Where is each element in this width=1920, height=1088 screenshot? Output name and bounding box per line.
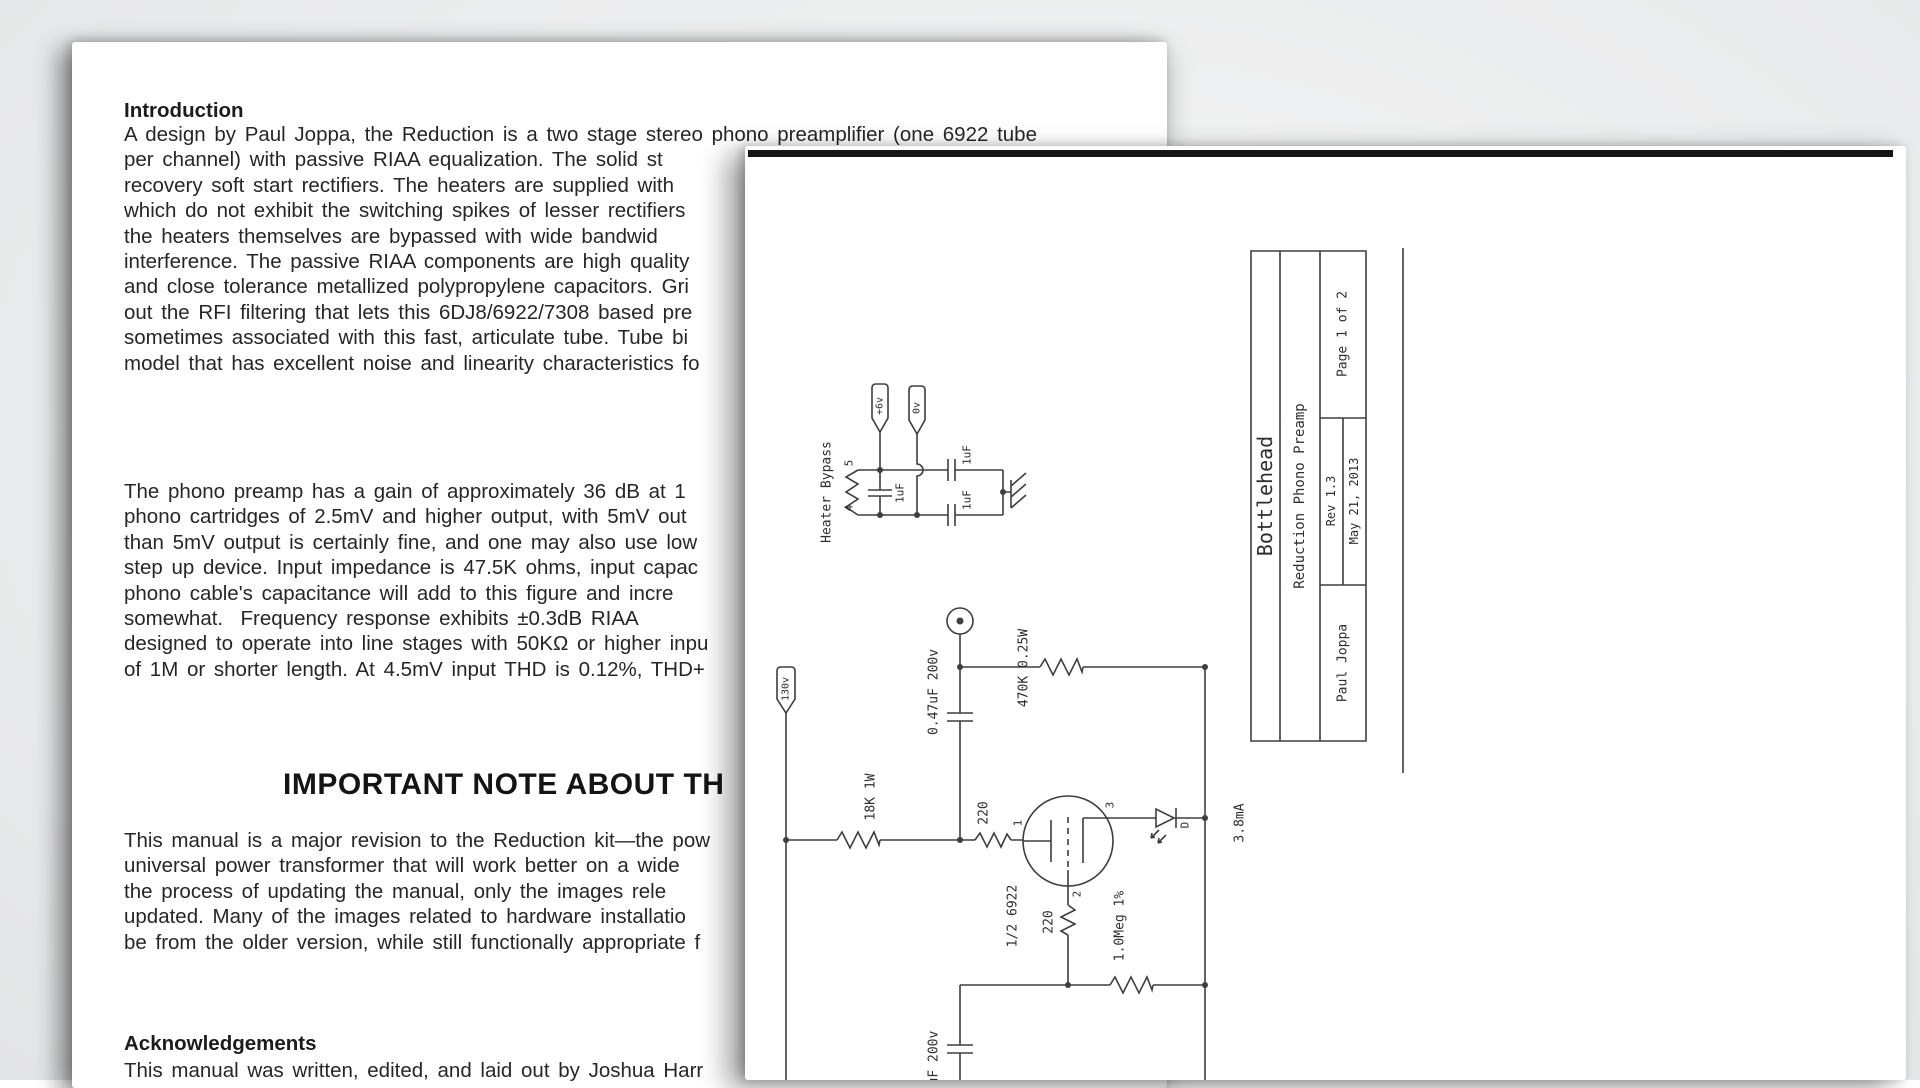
junction-dot xyxy=(1000,489,1006,495)
plus6v-flag-label: +6v xyxy=(875,397,886,415)
revision-paragraph: This manual is a major revision to the R… xyxy=(124,828,710,955)
revision-label: Rev 1.3 xyxy=(1324,476,1338,527)
supply-130v-label: 130v xyxy=(781,677,792,701)
coupling-cap-label: 0.47uF 200v xyxy=(927,649,942,735)
intro-heading: Introduction xyxy=(124,99,244,123)
doc-line: A design by Paul Joppa, the Reduction is… xyxy=(124,122,1037,147)
doc-line: of 1M or shorter length. At 4.5mV input … xyxy=(124,657,708,682)
heater-bypass-label: Heater Bypass xyxy=(820,441,835,543)
gain-stage-circuit: 130v 18K 1W 0.47uF 200v 470K 0.25W 220 xyxy=(777,608,1248,1080)
tube-plate-electrode xyxy=(1023,820,1051,862)
doc-line: universal power transformer that will wo… xyxy=(124,853,710,878)
heater-pin4-label: 4 xyxy=(843,504,856,511)
title-block: Bottlehead Reduction Phono Preamp Page 1… xyxy=(1251,248,1403,773)
heater-bypass-circuit: Heater Bypass +6v 0v 5 4 1uF xyxy=(820,384,1027,543)
tube-cathode-electrode xyxy=(1083,818,1156,863)
doc-line: be from the older version, while still f… xyxy=(124,930,710,955)
tube-pin2-label: 2 xyxy=(1071,891,1084,898)
tube-pin3-label: 3 xyxy=(1104,802,1117,809)
cathode-current-label: 3.8mA xyxy=(1233,803,1248,842)
grid-leak-symbol xyxy=(1110,977,1153,993)
doc-line: The phono preamp has a gain of approxima… xyxy=(124,479,708,504)
grid-leak-label: 1.0Meg 1% xyxy=(1113,891,1128,962)
heater-top-cap xyxy=(948,459,955,481)
heater-shunt-cap xyxy=(868,470,892,515)
doc-line: step up device. Input impedance is 47.5K… xyxy=(124,555,708,580)
riaa-cap-label: 1uF 200v xyxy=(927,1031,942,1080)
cathode-resistor-symbol xyxy=(1061,905,1075,935)
important-note-heading: IMPORTANT NOTE ABOUT TH xyxy=(283,768,724,802)
junction-dot xyxy=(1202,664,1208,670)
riaa-cap-symbol xyxy=(947,985,973,1080)
heater-bottom-cap-label: 1uF xyxy=(961,490,974,510)
doc-line: than 5mV output is certainly fine, and o… xyxy=(124,530,708,555)
doc-line: the process of updating the manual, only… xyxy=(124,879,710,904)
company-name: Bottlehead xyxy=(1253,436,1277,556)
doc-line: updated. Many of the images related to h… xyxy=(124,904,710,929)
plate-resistor-symbol xyxy=(837,832,880,848)
zero-v-flag-label: 0v xyxy=(912,402,923,414)
output-jack-center xyxy=(957,618,964,625)
tube-pin1-label: 1 xyxy=(1012,820,1025,827)
junction-dot xyxy=(783,837,789,843)
doc-line: phono cartridges of 2.5mV and higher out… xyxy=(124,504,708,529)
heater-bottom-cap xyxy=(948,504,955,526)
desktop-background: Introduction A design by Paul Joppa, the… xyxy=(0,0,1920,1080)
sheet-top-border xyxy=(748,150,1893,157)
load-resistor-label: 470K 0.25W xyxy=(1017,629,1032,707)
junction-dot xyxy=(1065,982,1071,988)
plate-stopper-symbol xyxy=(975,833,1011,847)
junction-dot xyxy=(957,664,963,670)
page-number: Page 1 of 2 xyxy=(1336,291,1351,377)
plate-resistor-label: 18K 1W xyxy=(864,773,879,820)
junction-dot xyxy=(914,512,920,518)
schematic-title: Reduction Phono Preamp xyxy=(1292,403,1308,588)
junction-dot xyxy=(957,837,963,843)
acknowledgements-heading: Acknowledgements xyxy=(124,1032,317,1056)
chassis-ground-symbol xyxy=(1003,470,1026,515)
doc-line: phono cable's capacitance will add to th… xyxy=(124,581,708,606)
load-resistor-symbol xyxy=(1040,659,1083,675)
led-designator-label: D xyxy=(1179,822,1192,829)
author-name: Paul Joppa xyxy=(1336,624,1351,702)
heater-top-cap-label: 1uF xyxy=(961,445,974,465)
schematic-drawing: Heater Bypass +6v 0v 5 4 1uF xyxy=(745,146,1906,1080)
doc-line: somewhat. Frequency response exhibits ±0… xyxy=(124,606,708,631)
heater-shunt-cap-label: 1uF xyxy=(894,483,907,503)
wire-with-hop xyxy=(917,434,923,515)
junction-dot xyxy=(877,467,883,473)
schematic-page: Heater Bypass +6v 0v 5 4 1uF xyxy=(745,146,1906,1080)
gain-paragraph: The phono preamp has a gain of approxima… xyxy=(124,479,708,682)
revision-date: May 21, 2013 xyxy=(1347,458,1361,545)
doc-line: designed to operate into line stages wit… xyxy=(124,631,708,656)
junction-dot xyxy=(1202,815,1208,821)
junction-dot xyxy=(877,512,883,518)
cathode-resistor-label: 220 xyxy=(1042,910,1057,933)
doc-line: This manual is a major revision to the R… xyxy=(124,828,710,853)
tube-label: 1/2 6922 xyxy=(1006,885,1021,948)
junction-dot xyxy=(1202,982,1208,988)
led-emission-arrows xyxy=(1151,830,1166,843)
heater-pin5-label: 5 xyxy=(843,460,856,467)
plate-stopper-label: 220 xyxy=(977,801,992,824)
